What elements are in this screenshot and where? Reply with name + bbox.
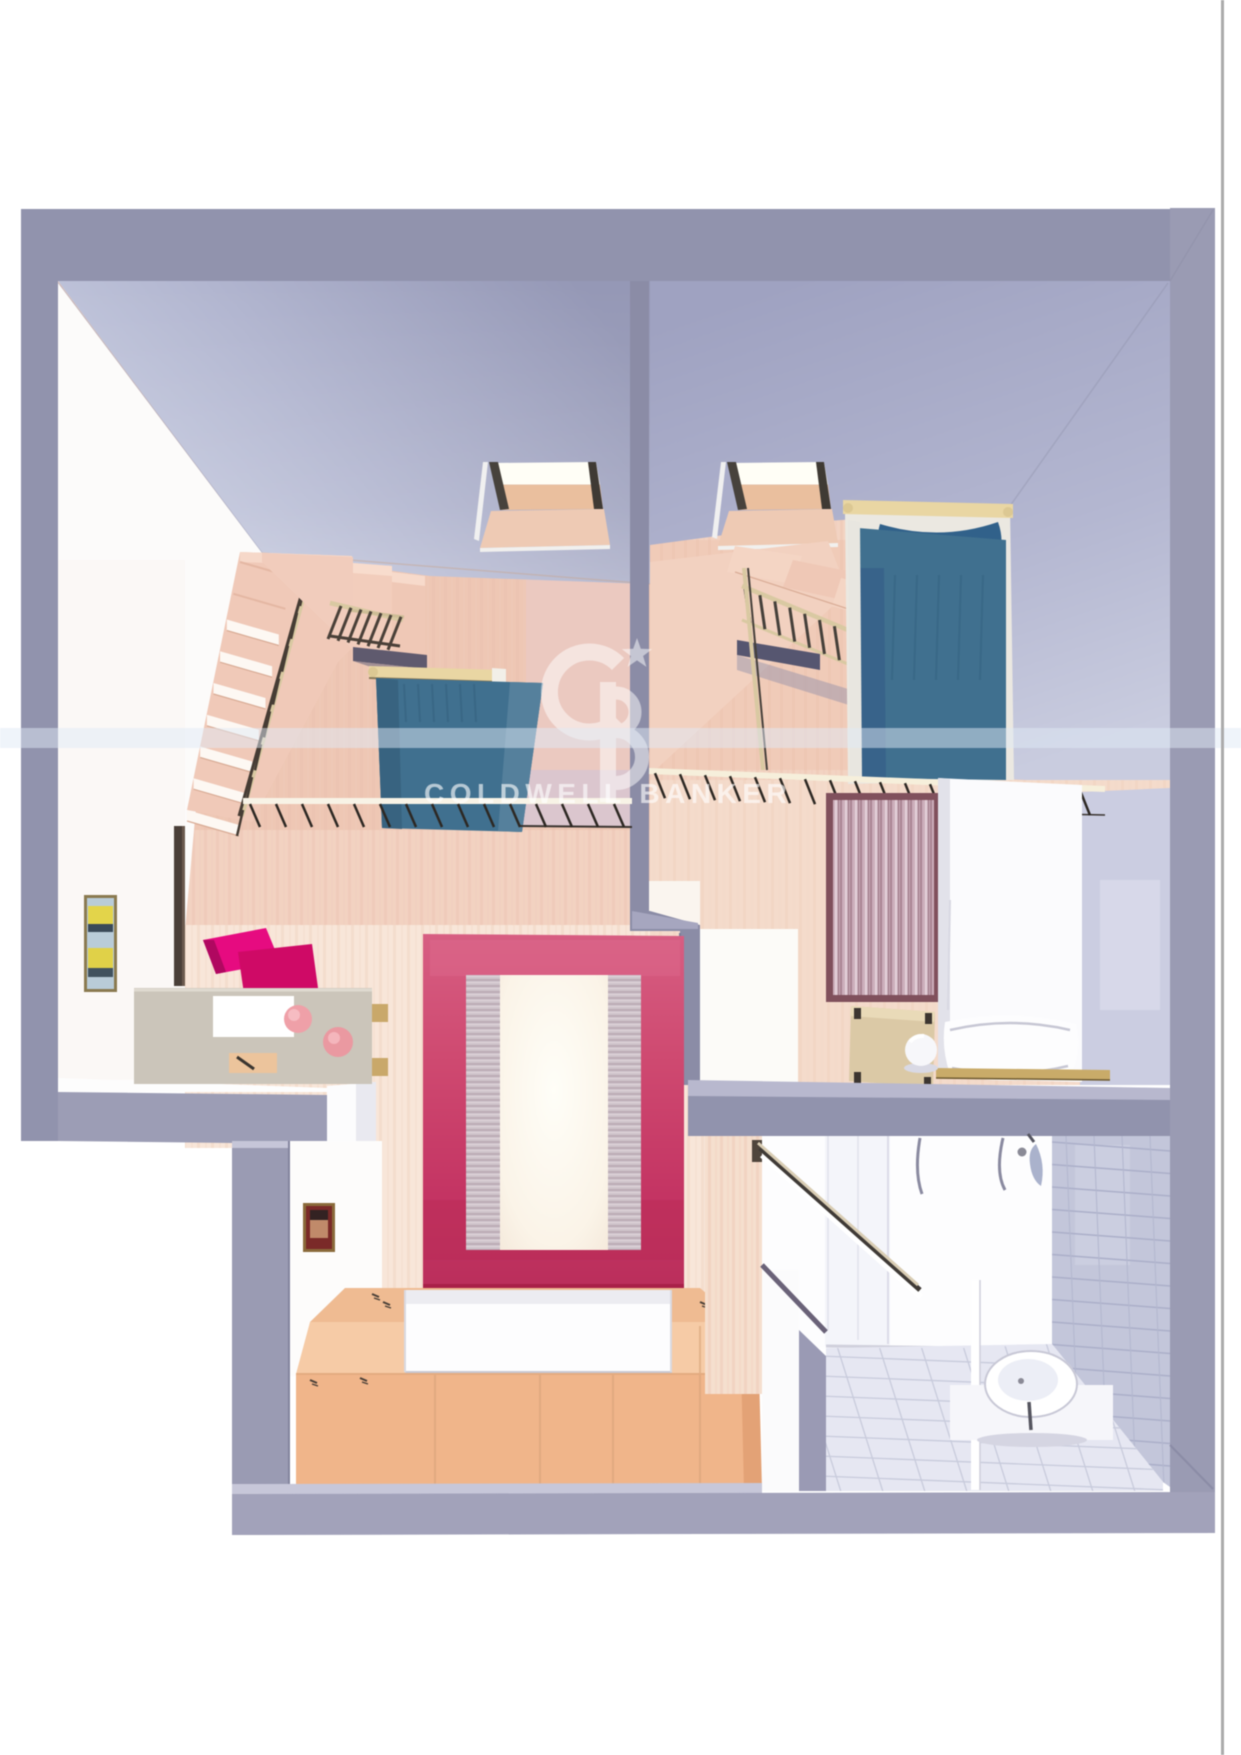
svg-text:COLDWELL BANKER: COLDWELL BANKER: [424, 778, 792, 809]
